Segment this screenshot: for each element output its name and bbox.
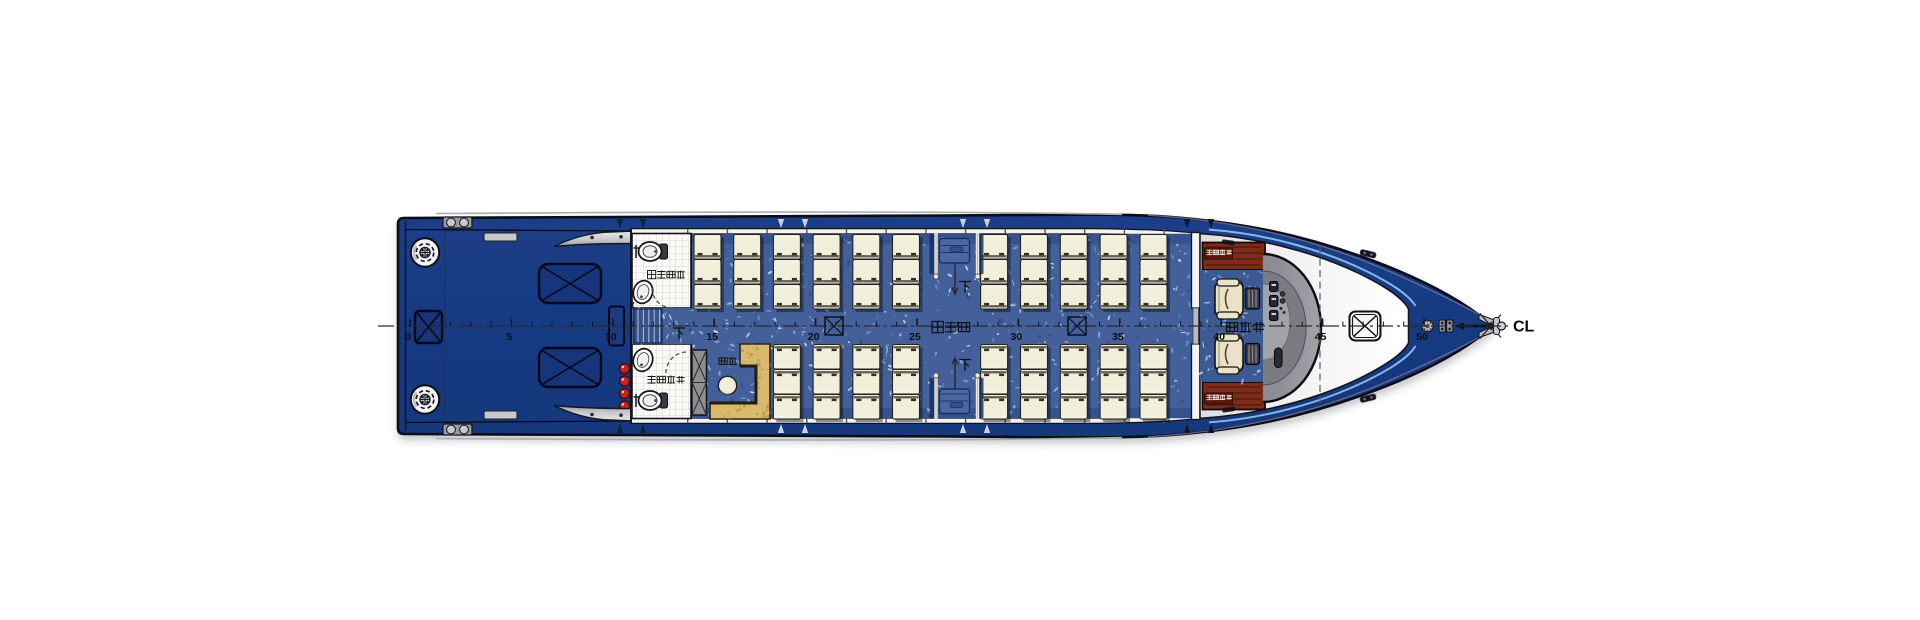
svg-text:35: 35 (1112, 331, 1124, 343)
svg-text:45: 45 (1315, 331, 1327, 343)
svg-text:50: 50 (1416, 331, 1428, 343)
svg-text:10: 10 (605, 331, 617, 343)
svg-text:30: 30 (1011, 331, 1023, 343)
svg-text:40: 40 (1213, 331, 1225, 343)
svg-text:20: 20 (808, 331, 820, 343)
svg-text:25: 25 (909, 331, 921, 343)
svg-text:15: 15 (706, 331, 718, 343)
svg-text:0: 0 (405, 331, 411, 343)
svg-text:5: 5 (506, 331, 512, 343)
svg-text:CL: CL (1513, 319, 1535, 336)
